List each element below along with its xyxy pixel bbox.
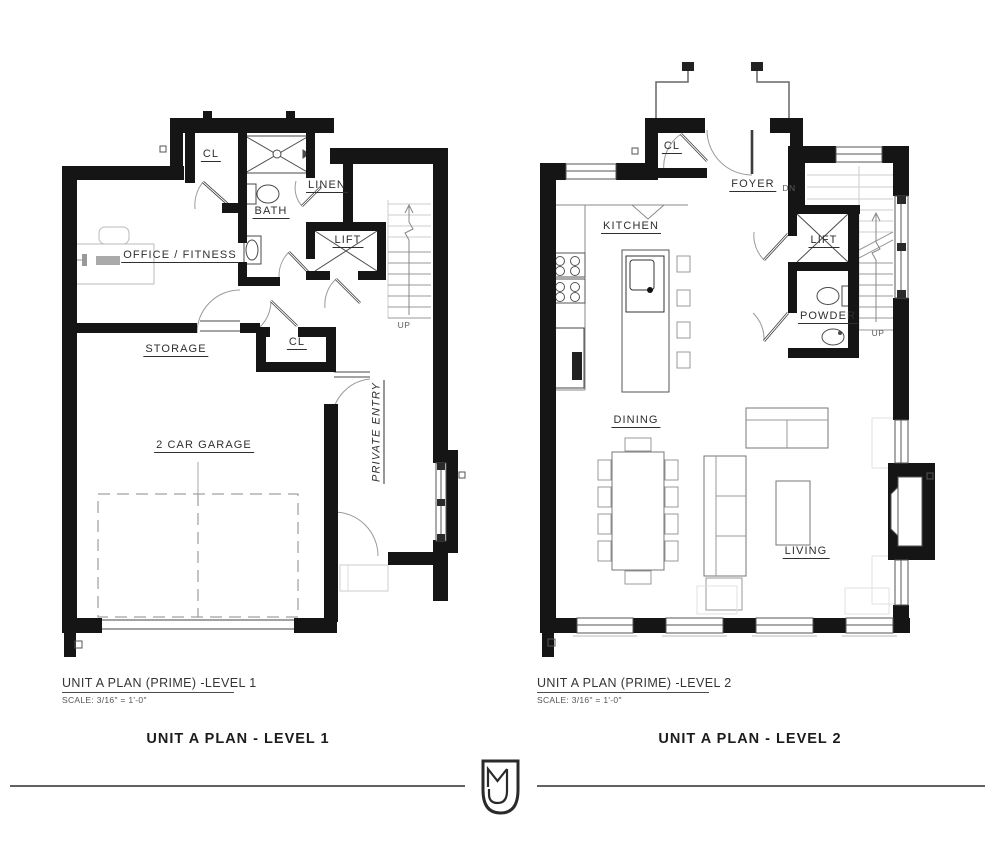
room-label-garage: 2 CAR GARAGE (154, 440, 254, 453)
level1-plan-drawing (62, 111, 465, 657)
drawing-sheet: CL LINEN BATH LIFT OFFICE / FITNESS STOR… (0, 0, 1000, 850)
level2-plan-drawing (540, 62, 935, 657)
sheet-title-level2: UNIT A PLAN (PRIME) -LEVEL 2 (537, 676, 709, 693)
room-label-closet-top-l1: CL (201, 149, 221, 162)
stairs-up-label-l2: UP (872, 329, 885, 338)
room-label-dining: DINING (611, 415, 660, 428)
sheet-title-level1: UNIT A PLAN (PRIME) -LEVEL 1 (62, 676, 234, 693)
sheet-head-level2: UNIT A PLAN (PRIME) -LEVEL 2 SCALE: 3/16… (537, 676, 709, 705)
level1-garage-door (98, 462, 298, 629)
sheet-head-level1: UNIT A PLAN (PRIME) -LEVEL 1 SCALE: 3/16… (62, 676, 234, 705)
floor-plan-svg (0, 0, 1000, 850)
room-label-closet-mid-l1: CL (287, 337, 307, 350)
sheet-scale-level2: SCALE: 3/16" = 1'-0" (537, 695, 709, 705)
room-label-linen: LINEN (306, 180, 348, 193)
room-label-lift-l1: LIFT (332, 235, 363, 248)
room-label-office-fitness: OFFICE / FITNESS (121, 250, 239, 263)
room-label-storage: STORAGE (143, 344, 208, 357)
plan-caption-level1: UNIT A PLAN - LEVEL 1 (146, 731, 329, 747)
room-label-bath: BATH (253, 206, 290, 219)
level1-stairs (388, 200, 431, 318)
mj-monogram-logo (483, 761, 518, 813)
foyer-dn-label: DN (782, 184, 795, 193)
stairs-up-label-l1: UP (398, 321, 411, 330)
room-label-closet-l2: CL (662, 141, 682, 154)
plan-caption-level2: UNIT A PLAN - LEVEL 2 (658, 731, 841, 747)
level2-porch-posts (656, 62, 789, 118)
room-label-private-entry: PRIVATE ENTRY (372, 380, 385, 484)
level2-door-leaves (681, 130, 788, 341)
room-label-foyer: FOYER (729, 179, 776, 192)
sheet-scale-level1: SCALE: 3/16" = 1'-0" (62, 695, 234, 705)
room-label-powder: POWDER (798, 311, 858, 324)
level1-markers (75, 146, 465, 648)
level2-door-leaf-cores (681, 134, 788, 341)
level1-walls (62, 111, 458, 657)
room-label-lift-l2: LIFT (808, 235, 839, 248)
level1-right-window (436, 463, 446, 541)
level2-door-arcs (664, 130, 764, 341)
room-label-living: LIVING (783, 546, 830, 559)
level2-furniture (598, 408, 896, 614)
room-label-kitchen: KITCHEN (601, 221, 661, 234)
